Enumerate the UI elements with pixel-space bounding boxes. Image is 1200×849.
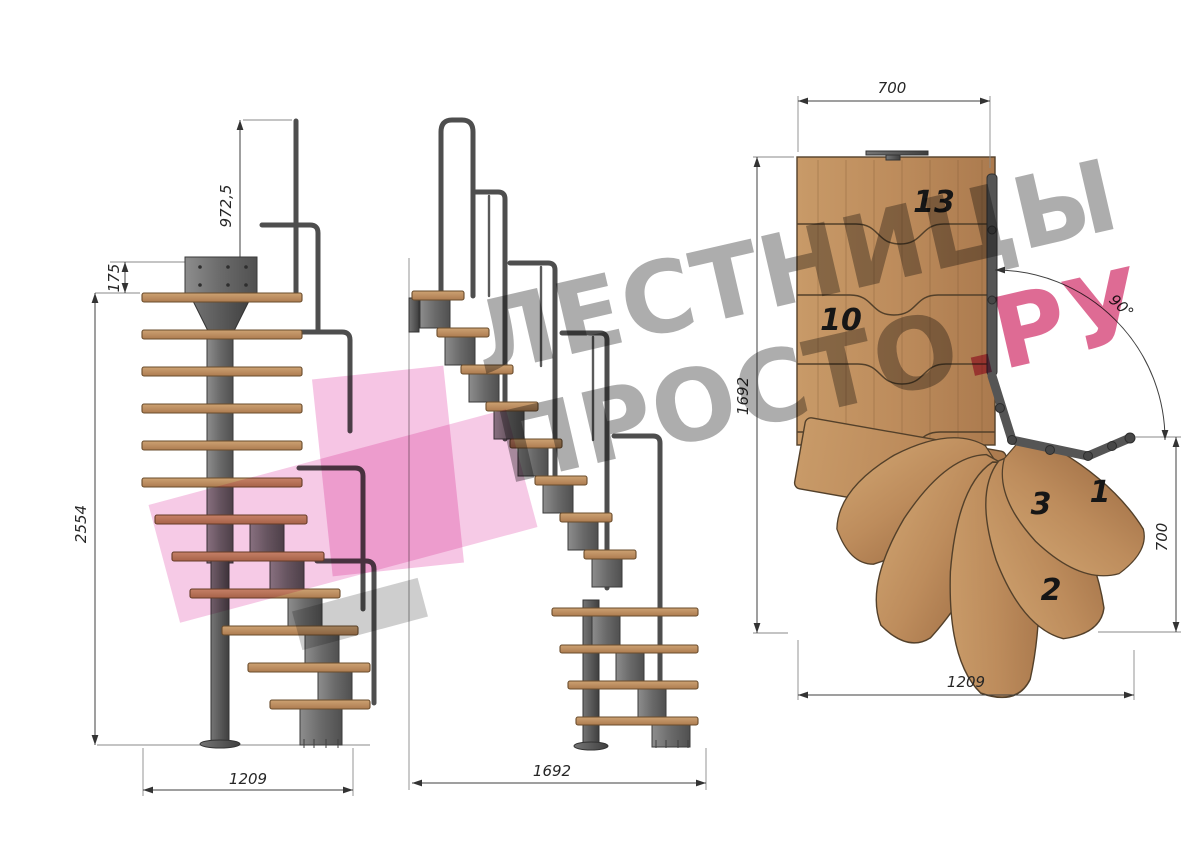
side-pole-base bbox=[574, 742, 608, 750]
plan-step-number-13: 13 bbox=[913, 185, 955, 220]
plan-dim-top-width: 700 bbox=[878, 79, 907, 97]
plan-upper-flight bbox=[797, 157, 995, 445]
plan-dim-exit-depth: 700 bbox=[1153, 523, 1171, 552]
side-lower-steps bbox=[552, 600, 698, 750]
plan-dim-angle-arc bbox=[995, 270, 1165, 440]
plan-view: 13 10 1 3 2 700 1692 90° 700 1209 bbox=[734, 79, 1181, 700]
front-dim-handrail-height: 972,5 bbox=[217, 185, 235, 228]
side-view: 1692 bbox=[409, 120, 706, 790]
plan-step-number-10: 10 bbox=[820, 303, 862, 338]
plan-wall-bracket bbox=[866, 151, 928, 155]
side-handrail-loop bbox=[441, 120, 473, 296]
plan-step-number-2: 2 bbox=[1041, 573, 1062, 608]
plan-wall-bracket-tab bbox=[886, 155, 900, 160]
front-lower-steps bbox=[155, 515, 370, 748]
front-dim-width: 1209 bbox=[229, 770, 267, 788]
plan-dim-side-length: 1692 bbox=[734, 377, 752, 415]
plan-handrail-bar bbox=[987, 174, 997, 376]
front-dim-total-height: 2554 bbox=[72, 505, 90, 543]
plan-step-number-1: 1 bbox=[1090, 475, 1111, 510]
plan-step-number-3: 3 bbox=[1031, 487, 1052, 522]
front-handrail-elbow-2 bbox=[284, 332, 350, 431]
front-support-pole bbox=[211, 560, 229, 742]
front-handrail-elbow-1 bbox=[262, 225, 318, 330]
side-wall-bracket bbox=[409, 298, 419, 332]
side-dim-length: 1692 bbox=[533, 762, 571, 780]
plan-dim-turn-angle: 90° bbox=[1105, 291, 1137, 322]
staircase-drawing-canvas: 2554 175 972,5 1209 bbox=[0, 0, 1200, 849]
front-pole-base bbox=[200, 740, 240, 748]
technical-drawing: 2554 175 972,5 1209 bbox=[0, 0, 1200, 849]
front-dim-top-offset: 175 bbox=[105, 264, 123, 293]
front-view: 2554 175 972,5 1209 bbox=[72, 120, 374, 796]
front-wall-plate bbox=[185, 257, 257, 295]
front-handrail-elbow-3 bbox=[299, 468, 363, 609]
plan-dim-bottom-width: 1209 bbox=[947, 673, 985, 691]
